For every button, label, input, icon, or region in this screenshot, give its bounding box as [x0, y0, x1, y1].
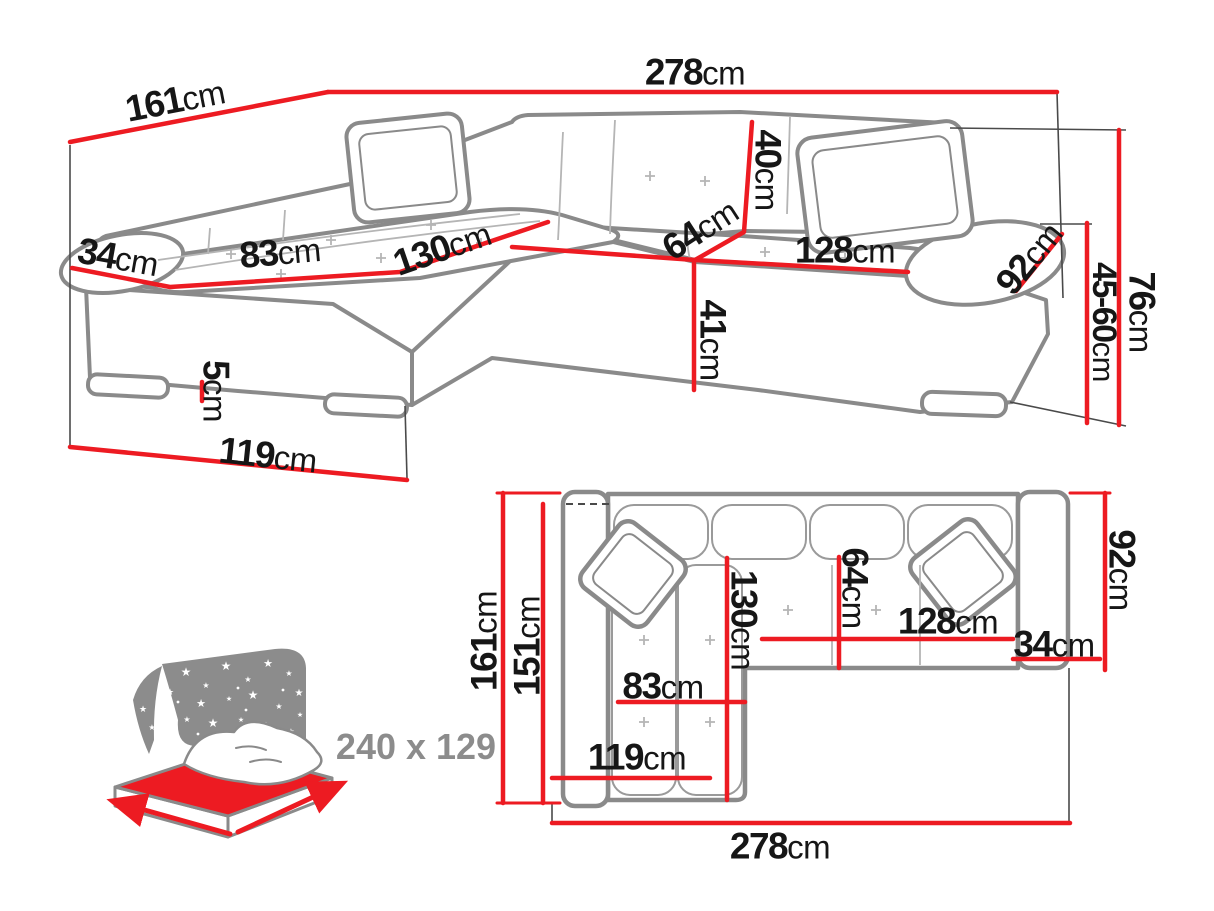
dim-plan-seat-width: 128cm: [898, 603, 998, 640]
svg-text:★: ★: [275, 702, 282, 711]
sleeping-area-size-label: 240 x 129: [336, 729, 496, 765]
svg-text:★: ★: [183, 715, 190, 724]
dim-persp-backrest-thickness: 40cm: [750, 129, 787, 210]
svg-text:★: ★: [139, 705, 147, 715]
svg-text:★: ★: [297, 711, 303, 719]
dim-plan-total-depth: 161cm: [466, 591, 503, 691]
svg-text:★: ★: [221, 659, 232, 673]
sofa-dimension-diagram: ★★ ★★ ★★ ★★ ★★ ★★ ★★ ★★ ★★ ★★ ★★: [0, 0, 1214, 911]
svg-text:★: ★: [166, 688, 174, 698]
svg-text:★: ★: [295, 688, 304, 699]
svg-text:★: ★: [202, 681, 209, 690]
dim-persp-backrest-height-range: 45-60cm: [1087, 262, 1121, 382]
dim-plan-chaise-front-width: 119cm: [588, 739, 686, 776]
dim-plan-chaise-length: 130cm: [726, 570, 763, 670]
dim-plan-armrest-width: 34cm: [1013, 626, 1094, 663]
dim-plan-chaise-seat-width: 83cm: [622, 668, 703, 705]
svg-text:★: ★: [181, 665, 192, 679]
dim-persp-chaise-seat-width: 83cm: [238, 230, 322, 274]
dim-plan-armrest-depth: 92cm: [1104, 529, 1141, 610]
svg-text:★: ★: [148, 723, 155, 732]
svg-text:★: ★: [208, 716, 219, 730]
dim-persp-total-height: 76cm: [1124, 271, 1161, 352]
dim-persp-seat-height: 41cm: [695, 299, 732, 380]
svg-text:★: ★: [226, 695, 232, 703]
dim-persp-leg-height: 5cm: [198, 360, 235, 422]
starry-blanket-swoosh: [133, 666, 162, 754]
svg-text:★: ★: [196, 697, 206, 710]
dim-persp-seat-width: 128cm: [795, 232, 895, 269]
sofa-pillow-left: [345, 112, 471, 224]
dim-plan-seat-depth: 64cm: [837, 547, 874, 628]
dim-plan-total-width: 278cm: [730, 828, 830, 865]
svg-text:★: ★: [244, 675, 251, 684]
dim-persp-total-width: 278cm: [645, 54, 745, 91]
svg-text:★: ★: [263, 657, 273, 670]
dim-plan-inner-depth: 151cm: [509, 596, 546, 696]
svg-text:★: ★: [248, 688, 259, 702]
svg-text:★: ★: [285, 669, 292, 678]
sleeping-function-icon: ★★ ★★ ★★ ★★ ★★ ★★ ★★ ★★ ★★ ★★ ★★: [115, 649, 339, 837]
